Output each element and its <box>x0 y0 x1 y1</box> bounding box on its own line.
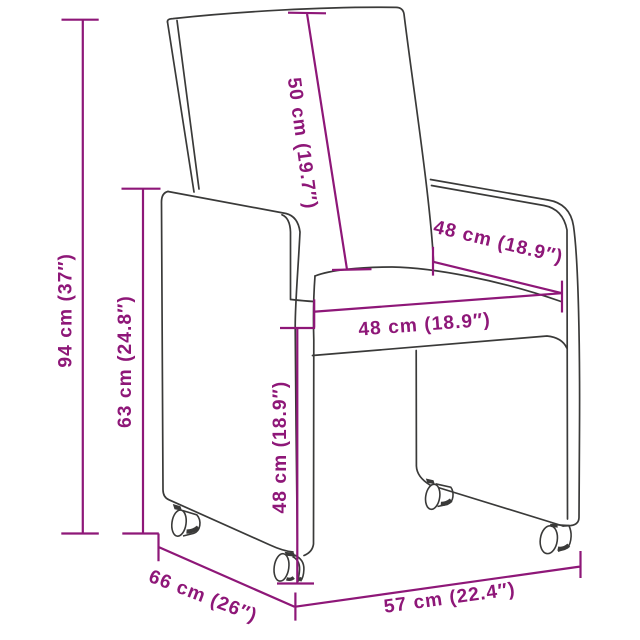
svg-text:94 cm (37″): 94 cm (37″) <box>55 253 76 368</box>
svg-text:66 cm (26″): 66 cm (26″) <box>146 566 261 627</box>
svg-text:48 cm (18.9″): 48 cm (18.9″) <box>431 217 565 268</box>
svg-text:48 cm (18.9″): 48 cm (18.9″) <box>358 310 492 341</box>
svg-text:50 cm (19.7″): 50 cm (19.7″) <box>283 76 321 210</box>
svg-text:48 cm (18.9″): 48 cm (18.9″) <box>270 381 291 514</box>
svg-text:63 cm (24.8″): 63 cm (24.8″) <box>115 295 136 428</box>
